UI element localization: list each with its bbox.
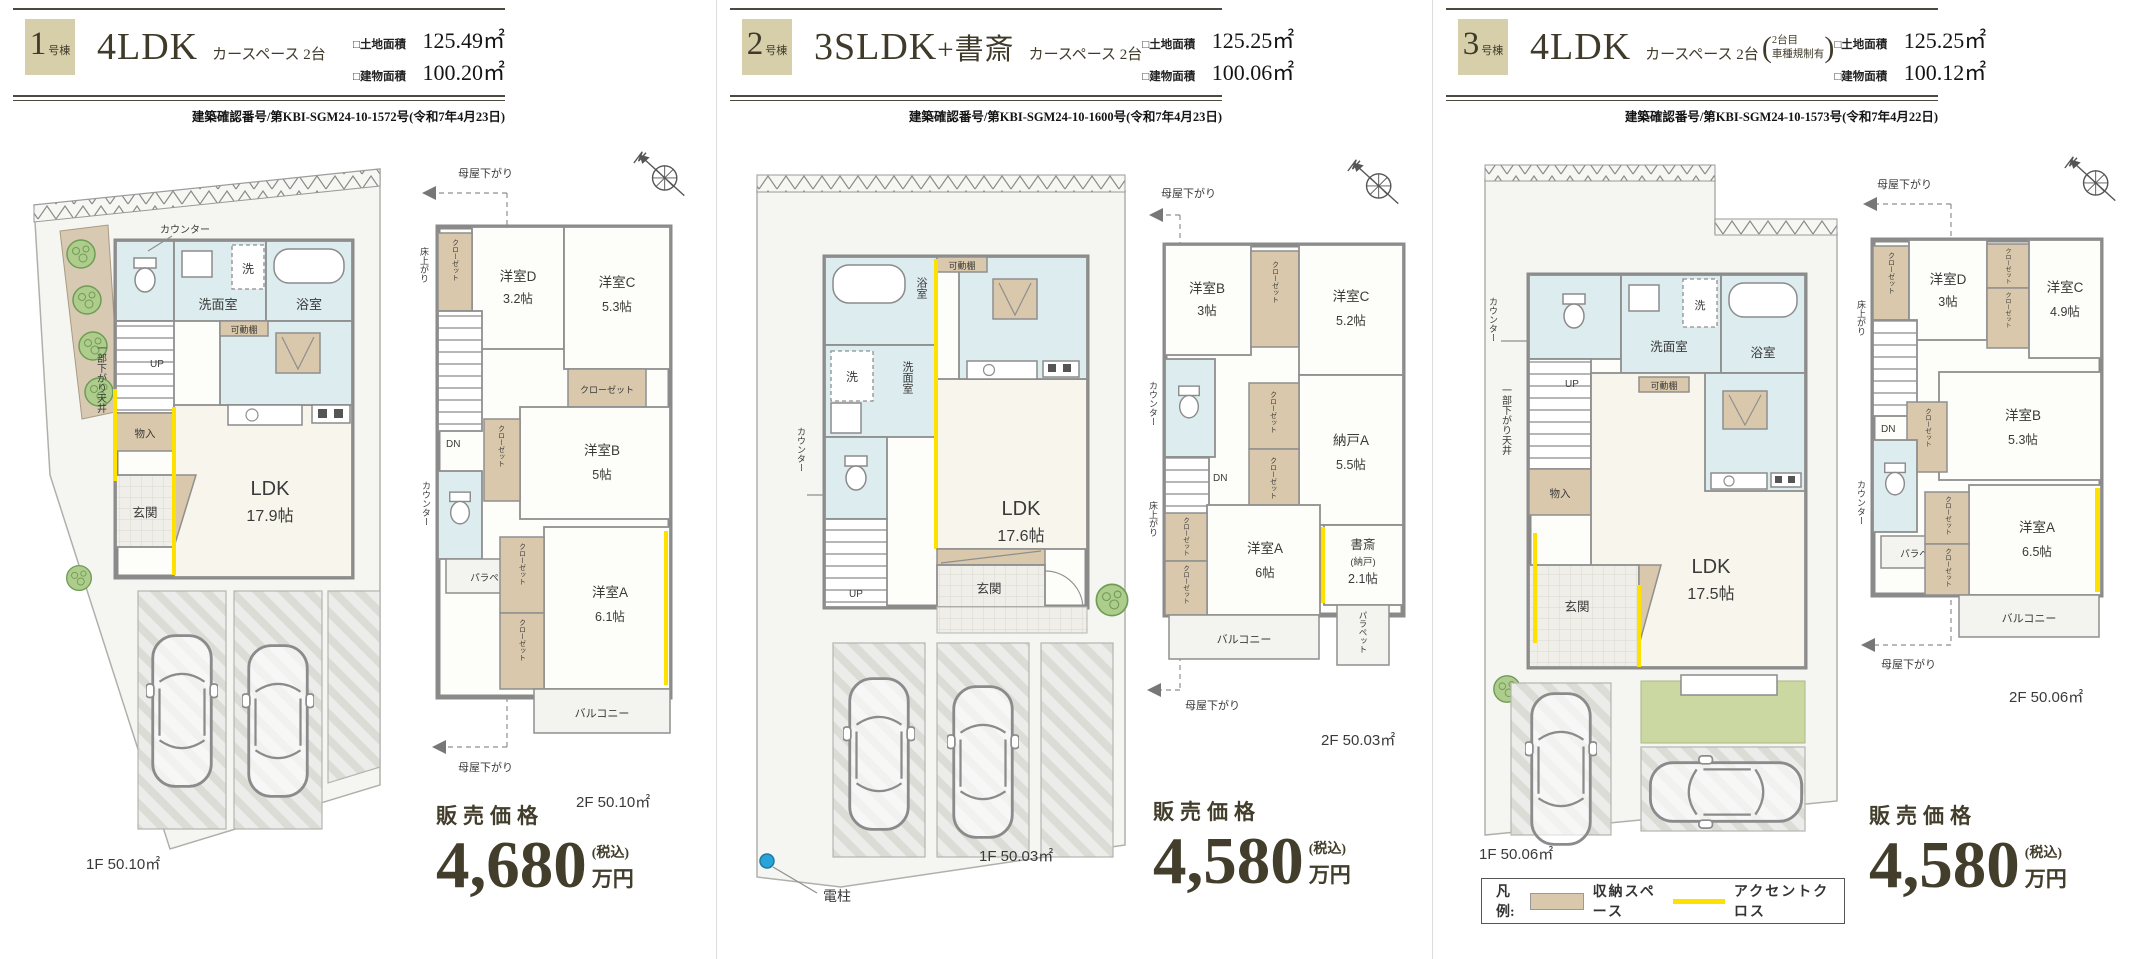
burner — [1048, 364, 1056, 372]
kitchen-sink — [967, 361, 1037, 379]
building-area-value: 100.12㎡ — [1904, 55, 1987, 87]
toilet-icon — [134, 258, 156, 292]
counter-label: カウンター — [1488, 297, 1498, 342]
bedroom-b — [520, 407, 670, 519]
legend-storage-label: 収納スペース — [1593, 881, 1664, 921]
burner — [1775, 476, 1782, 483]
garden-deck — [1681, 675, 1777, 695]
land-area-label: □土地面積 — [1834, 36, 1887, 52]
bedroom-c — [564, 227, 670, 369]
ldk-room — [937, 379, 1087, 549]
car-icon — [242, 646, 314, 797]
unit1-1f-plan: 洗 洗面室 浴室 UP 物入 可動棚 LDK 17.9帖 玄関 — [20, 145, 400, 890]
entrance-label: 玄関 — [976, 581, 1001, 596]
study-size: 2.1帖 — [1348, 571, 1378, 586]
roof-slope-label: 母屋下がり — [1185, 698, 1240, 712]
bedroom-d — [1909, 240, 1987, 340]
accent-cloth — [2095, 488, 2100, 592]
bedroom-d-label: 洋室D — [500, 268, 537, 284]
price-amount: 4,580 — [1153, 826, 1304, 896]
land-area-value: 125.49㎡ — [422, 23, 505, 55]
tree-icon — [67, 566, 92, 591]
counter-label: カウンター — [796, 427, 806, 472]
stairs-down — [438, 311, 482, 431]
bedroom-a-label: 洋室A — [1247, 540, 1283, 556]
compass-icon — [634, 152, 684, 196]
closet-label: クローゼット — [519, 619, 527, 661]
stairs-down-label: DN — [1881, 424, 1895, 435]
area-figures: □土地面積125.49㎡ □建物面積100.20㎡ — [353, 23, 505, 87]
toilet-icon — [1179, 386, 1200, 418]
price-label: 販売価格 — [436, 800, 716, 830]
lowered-ceiling-label: 一部下がり天井 — [95, 343, 107, 414]
lowered-ceiling-label: 一部下がり天井 — [1500, 385, 1512, 456]
bedroom-c-size: 4.9帖 — [2050, 304, 2080, 319]
unit2-header: 2 号棟 3SLDK+書斎 カースペース 2台 □土地面積125.25㎡ □建物… — [730, 8, 1222, 101]
plan-type: 4LDK — [97, 19, 198, 75]
kitchen-sink — [1711, 473, 1767, 489]
car-icon — [146, 636, 218, 787]
bedroom-a — [1207, 505, 1320, 615]
closet-label: クローゼット — [1888, 252, 1896, 294]
building-area-label: □建物面積 — [1834, 68, 1887, 84]
storage-label: 物入 — [135, 427, 156, 440]
roof-arrow — [1863, 197, 1877, 211]
legend-title: 凡例: — [1496, 881, 1521, 921]
land-area-value: 125.25㎡ — [1904, 23, 1987, 55]
unit2-number-badge: 2 号棟 — [742, 19, 792, 75]
bathtub-icon — [833, 265, 905, 303]
bedroom-c — [1299, 245, 1403, 375]
floor2-area: 2F 50.03㎡ — [1321, 732, 1395, 749]
bedroom-b-label: 洋室B — [1189, 280, 1225, 296]
unit3-number-badge: 3 号棟 — [1458, 19, 1508, 75]
building-area-label: □建物面積 — [1142, 68, 1195, 84]
unit2-price: 販売価格 4,580 (税込) 万円 — [1153, 796, 1433, 896]
car-icon — [1525, 694, 1597, 845]
roof-slope-label: 母屋下がり — [1161, 186, 1216, 200]
paved-area — [328, 591, 380, 783]
stairs-up — [1529, 359, 1591, 469]
unit-number-suffix: 号棟 — [765, 42, 787, 58]
car-note-line2: 車種規制有 — [1772, 48, 1825, 62]
accent-cloth — [172, 407, 176, 575]
retaining-wall — [757, 175, 1125, 192]
price-amount: 4,680 — [436, 830, 587, 900]
roof-arrow — [422, 186, 436, 200]
floor1-area: 1F 50.03㎡ — [979, 848, 1053, 865]
burner — [334, 409, 343, 418]
toilet-icon — [450, 492, 471, 524]
storeroom-a-size: 5.5帖 — [1336, 457, 1366, 472]
unit3-price: 販売価格 4,580 (税込) 万円 — [1869, 800, 2148, 900]
car-icon — [843, 679, 915, 830]
toilet-icon — [1885, 463, 1906, 495]
study-sub-label: (納戸) — [1350, 556, 1375, 568]
bedroom-b — [1165, 245, 1251, 355]
bathroom-label: 浴室 — [296, 297, 322, 312]
bedroom-a-size: 6帖 — [1255, 565, 1274, 580]
price-amount: 4,580 — [1869, 830, 2020, 900]
car-icon — [947, 687, 1019, 838]
counter-label: カウンター — [421, 481, 431, 526]
header-rule-bottom — [13, 95, 505, 97]
parapet-label: パラペット — [1358, 611, 1368, 654]
stairs-up-label: UP — [150, 359, 164, 370]
legend-box: 凡例: 収納スペース アクセントクロス — [1481, 878, 1845, 924]
unit1-2f-plan: 母屋下がり 洋室D 3.2帖 クローゼット 洋室C 5.3帖 クローゼット DN… — [410, 135, 710, 815]
header-rule-bottom — [1446, 95, 1938, 97]
building-area-value: 100.20㎡ — [422, 55, 505, 87]
closet-label: クローゼット — [1272, 261, 1280, 303]
closet-label: クローゼット — [2004, 248, 2011, 284]
accent-cloth — [664, 531, 668, 685]
ldk-label: LDK — [1002, 498, 1042, 520]
shelf-label: 可動棚 — [1650, 380, 1677, 391]
floor-raised-label: 床上がり — [1856, 299, 1866, 336]
car-space-note: ( 2台目 車種規制有 ) — [1762, 33, 1835, 63]
building-area-label: □建物面積 — [353, 68, 406, 84]
car-note-line1: 2台目 — [1772, 34, 1825, 48]
balcony-label: バルコニー — [1217, 633, 1272, 646]
unit-number: 1 — [30, 28, 47, 61]
bedroom-d-size: 3帖 — [1938, 294, 1957, 309]
header-rule-bottom-thin — [1446, 100, 1938, 101]
unit3-1f-plan: カウンター 洗 洗面室 浴室 UP 物入 一部下がり天井 可動棚 — [1471, 145, 1851, 875]
header-rule-bottom — [730, 95, 1222, 97]
entrance-label: 玄関 — [132, 505, 157, 520]
roof-slope-label: 母屋下がり — [458, 166, 513, 180]
stairs-down-label: DN — [1213, 473, 1227, 484]
paren-open: ( — [1762, 33, 1772, 63]
tree-icon — [73, 286, 101, 314]
roof-arrow — [1147, 683, 1161, 697]
compass-icon — [2065, 157, 2115, 201]
closet-label: クローゼット — [1270, 457, 1278, 499]
utility-pole-icon — [760, 854, 774, 868]
sink-icon — [1629, 285, 1659, 311]
car-space-label: カースペース 2台 — [212, 43, 326, 64]
washer-label: 洗 — [846, 370, 858, 384]
bedroom-a — [544, 527, 670, 689]
plan-type-extra: +書斎 — [937, 34, 1014, 66]
storeroom-a — [1299, 375, 1403, 525]
header-rule-bottom-thin — [13, 100, 505, 101]
compass-icon — [1348, 160, 1398, 204]
closet-label: クローゼット — [498, 425, 506, 467]
bedroom-c-size: 5.3帖 — [602, 299, 632, 314]
unit3-header: 3 号棟 4LDK カースペース 2台 ( 2台目 車種規制有 ) □土地面積1… — [1446, 8, 1938, 101]
counter-label: カウンター — [160, 224, 210, 236]
accent-cloth — [1637, 585, 1641, 667]
plan-type-main: 3SLDK — [814, 26, 937, 68]
shelf-label: 可動棚 — [230, 324, 257, 335]
floor2-area: 2F 50.06㎡ — [2009, 689, 2083, 706]
bathtub-icon — [274, 249, 344, 283]
study-label: 書斎 — [1350, 537, 1375, 552]
price-tax-note: (税込) — [592, 842, 634, 862]
unit2-1f-plan: 浴室 洗 洗面室 カウンター UP 可動棚 LDK 17.6帖 — [741, 145, 1141, 905]
bedroom-b-size: 5帖 — [592, 467, 611, 482]
bathroom-label: 浴室 — [915, 277, 928, 299]
bedroom-c-size: 5.2帖 — [1336, 313, 1366, 328]
shelf-label: 可動棚 — [948, 260, 975, 271]
building-area-value: 100.06㎡ — [1212, 55, 1295, 87]
bedroom-b-size: 3帖 — [1197, 303, 1216, 318]
bedroom-d-label: 洋室D — [1930, 271, 1967, 287]
bedroom-a-label: 洋室A — [2019, 519, 2055, 535]
unit1-number-badge: 1 号棟 — [25, 19, 75, 75]
land-area-value: 125.25㎡ — [1212, 23, 1295, 55]
sink-icon — [182, 251, 212, 277]
burner — [318, 409, 327, 418]
unit1-price: 販売価格 4,680 (税込) 万円 — [436, 800, 716, 900]
unit3-2f-plan: 母屋下がり クローゼット 床上がり 洋室D 3帖 クローゼット クローゼット 洋… — [1851, 140, 2143, 740]
accent-cloth — [1533, 533, 1537, 643]
ldk-size: 17.5帖 — [1687, 585, 1734, 603]
roof-slope-label: 母屋下がり — [1877, 177, 1932, 191]
balcony-label: バルコニー — [2002, 612, 2057, 625]
retaining-wall — [1715, 219, 1837, 235]
bedroom-b-size: 5.3帖 — [2008, 432, 2038, 447]
ldk-size: 17.6帖 — [997, 527, 1044, 545]
unit1-panel: 1 号棟 4LDK カースペース 2台 □土地面積125.49㎡ □建物面積10… — [0, 0, 716, 959]
washroom-label: 洗面室 — [901, 361, 914, 394]
unit-number-suffix: 号棟 — [48, 42, 70, 58]
land-area-label: □土地面積 — [1142, 36, 1195, 52]
roof-arrow — [432, 740, 446, 754]
bedroom-d — [472, 227, 564, 349]
bedroom-c — [2029, 240, 2101, 358]
closet-label: クローゼット — [452, 239, 460, 281]
bedroom-a-size: 6.1帖 — [595, 609, 625, 624]
sink-icon — [831, 403, 861, 433]
building-approval-number: 建築確認番号/第KBI-SGM24-10-1572号(令和7年4月23日) — [13, 106, 505, 125]
plan-type-main: 4LDK — [1530, 26, 1631, 68]
area-figures: □土地面積125.25㎡ □建物面積100.12㎡ — [1834, 23, 1986, 87]
paved-area — [1041, 643, 1113, 857]
plan-type-main: 4LDK — [97, 26, 198, 68]
price-tax-note: (税込) — [2025, 842, 2067, 862]
floor-raised-label: 床上がり — [1148, 500, 1158, 537]
price-tax-note: (税込) — [1309, 838, 1351, 858]
stairs-up-label: UP — [849, 589, 863, 600]
bedroom-c-label: 洋室C — [2047, 279, 2084, 295]
washer-label: 洗 — [242, 262, 254, 276]
land-area-label: □土地面積 — [353, 36, 406, 52]
entrance-label: 玄関 — [1564, 599, 1589, 614]
bedroom-a-size: 6.5帖 — [2022, 544, 2052, 559]
bedroom-a — [1969, 485, 2101, 595]
bedroom-c-label: 洋室C — [1333, 288, 1370, 304]
price-label: 販売価格 — [1869, 800, 2148, 830]
plan-type: 4LDK — [1530, 19, 1631, 75]
bedroom-c-label: 洋室C — [599, 274, 636, 290]
retaining-wall — [1485, 165, 1715, 181]
floor1-area: 1F 50.06㎡ — [1479, 846, 1553, 863]
storage-label: 物入 — [1550, 487, 1572, 500]
area-figures: □土地面積125.25㎡ □建物面積100.06㎡ — [1142, 23, 1294, 87]
building-approval-number: 建築確認番号/第KBI-SGM24-10-1600号(令和7年4月23日) — [730, 106, 1222, 125]
stove — [312, 405, 350, 423]
bathroom-label: 浴室 — [1750, 345, 1775, 360]
washer-label: 洗 — [1695, 299, 1706, 312]
burner — [1788, 476, 1795, 483]
roof-slope-label: 母屋下がり — [1881, 657, 1936, 671]
washroom-label: 洗面室 — [198, 297, 237, 312]
header-rule-bottom-thin — [730, 100, 1222, 101]
stairs-up — [116, 321, 174, 413]
car-space-label: カースペース 2台 — [1645, 43, 1759, 64]
legend-accent-label: アクセントクロス — [1734, 881, 1830, 921]
car-icon — [1650, 756, 1801, 828]
property-flyer: 1 号棟 4LDK カースペース 2台 □土地面積125.49㎡ □建物面積10… — [0, 0, 2148, 959]
price-unit: 万円 — [592, 863, 634, 893]
stairs-up-label: UP — [1565, 379, 1579, 390]
unit2-panel: 2 号棟 3SLDK+書斎 カースペース 2台 □土地面積125.25㎡ □建物… — [716, 0, 1432, 959]
car-space-label: カースペース 2台 — [1029, 43, 1143, 64]
price-unit: 万円 — [2025, 863, 2067, 893]
paren-close: ) — [1824, 33, 1834, 63]
floor-raised-label: 床上がり — [419, 246, 429, 283]
price-label: 販売価格 — [1153, 796, 1433, 826]
counter-label: カウンター — [1148, 381, 1158, 426]
bedroom-b — [1939, 372, 2101, 480]
kitchen-sink — [228, 405, 302, 425]
toilet-icon — [845, 456, 867, 490]
roof-arrow — [1149, 208, 1163, 222]
price-unit: 万円 — [1309, 859, 1351, 889]
bedroom-b-label: 洋室B — [2005, 407, 2041, 423]
bathtub-icon — [1729, 283, 1797, 317]
closet-label: クローゼット — [2004, 292, 2011, 328]
ldk-size: 17.9帖 — [246, 507, 293, 525]
tree-icon — [1096, 584, 1127, 615]
roof-slope-label: 母屋下がり — [458, 760, 513, 774]
storeroom-a-label: 納戸A — [1333, 433, 1369, 448]
bedroom-a-label: 洋室A — [592, 584, 628, 600]
entrance — [1529, 565, 1639, 667]
storage-swatch-icon — [1530, 893, 1584, 910]
unit-number-suffix: 号棟 — [1481, 42, 1503, 58]
accent-cloth — [113, 389, 117, 481]
washroom-label: 洗面室 — [1650, 339, 1688, 354]
bedroom-d-size: 3.2帖 — [503, 291, 533, 306]
accent-swatch-icon — [1673, 899, 1725, 904]
ldk-label: LDK — [251, 478, 291, 500]
bedroom-b-label: 洋室B — [584, 442, 620, 458]
accent-cloth — [934, 259, 938, 549]
tree-icon — [67, 240, 95, 268]
unit-number: 3 — [1463, 28, 1480, 61]
closet-label: クローゼット — [580, 384, 634, 395]
unit2-2f-plan: 母屋下がり 洋室B 3帖 クローゼット 洋室C 5.2帖 カウンター DN 納戸… — [1141, 145, 1433, 785]
plan-type: 3SLDK+書斎 — [814, 19, 1015, 78]
porch — [937, 607, 1087, 633]
burner — [1063, 364, 1071, 372]
closet-label: クローゼット — [519, 543, 527, 585]
utility-pole-label: 電柱 — [823, 888, 851, 904]
floor1-area: 1F 50.10㎡ — [86, 856, 160, 873]
ldk-label: LDK — [1692, 556, 1732, 578]
building-approval-number: 建築確認番号/第KBI-SGM24-10-1573号(令和7年4月22日) — [1446, 106, 1938, 125]
counter-label: カウンター — [1856, 480, 1866, 525]
closet-label: クローゼット — [1270, 391, 1278, 433]
unit1-header: 1 号棟 4LDK カースペース 2台 □土地面積125.49㎡ □建物面積10… — [13, 8, 505, 101]
stairs-down-label: DN — [446, 439, 460, 450]
unit-number: 2 — [747, 28, 764, 61]
unit3-panel: 3 号棟 4LDK カースペース 2台 ( 2台目 車種規制有 ) □土地面積1… — [1432, 0, 2148, 959]
roof-arrow — [1861, 638, 1875, 652]
toilet-icon — [1563, 294, 1585, 328]
balcony-label: バルコニー — [575, 707, 630, 720]
